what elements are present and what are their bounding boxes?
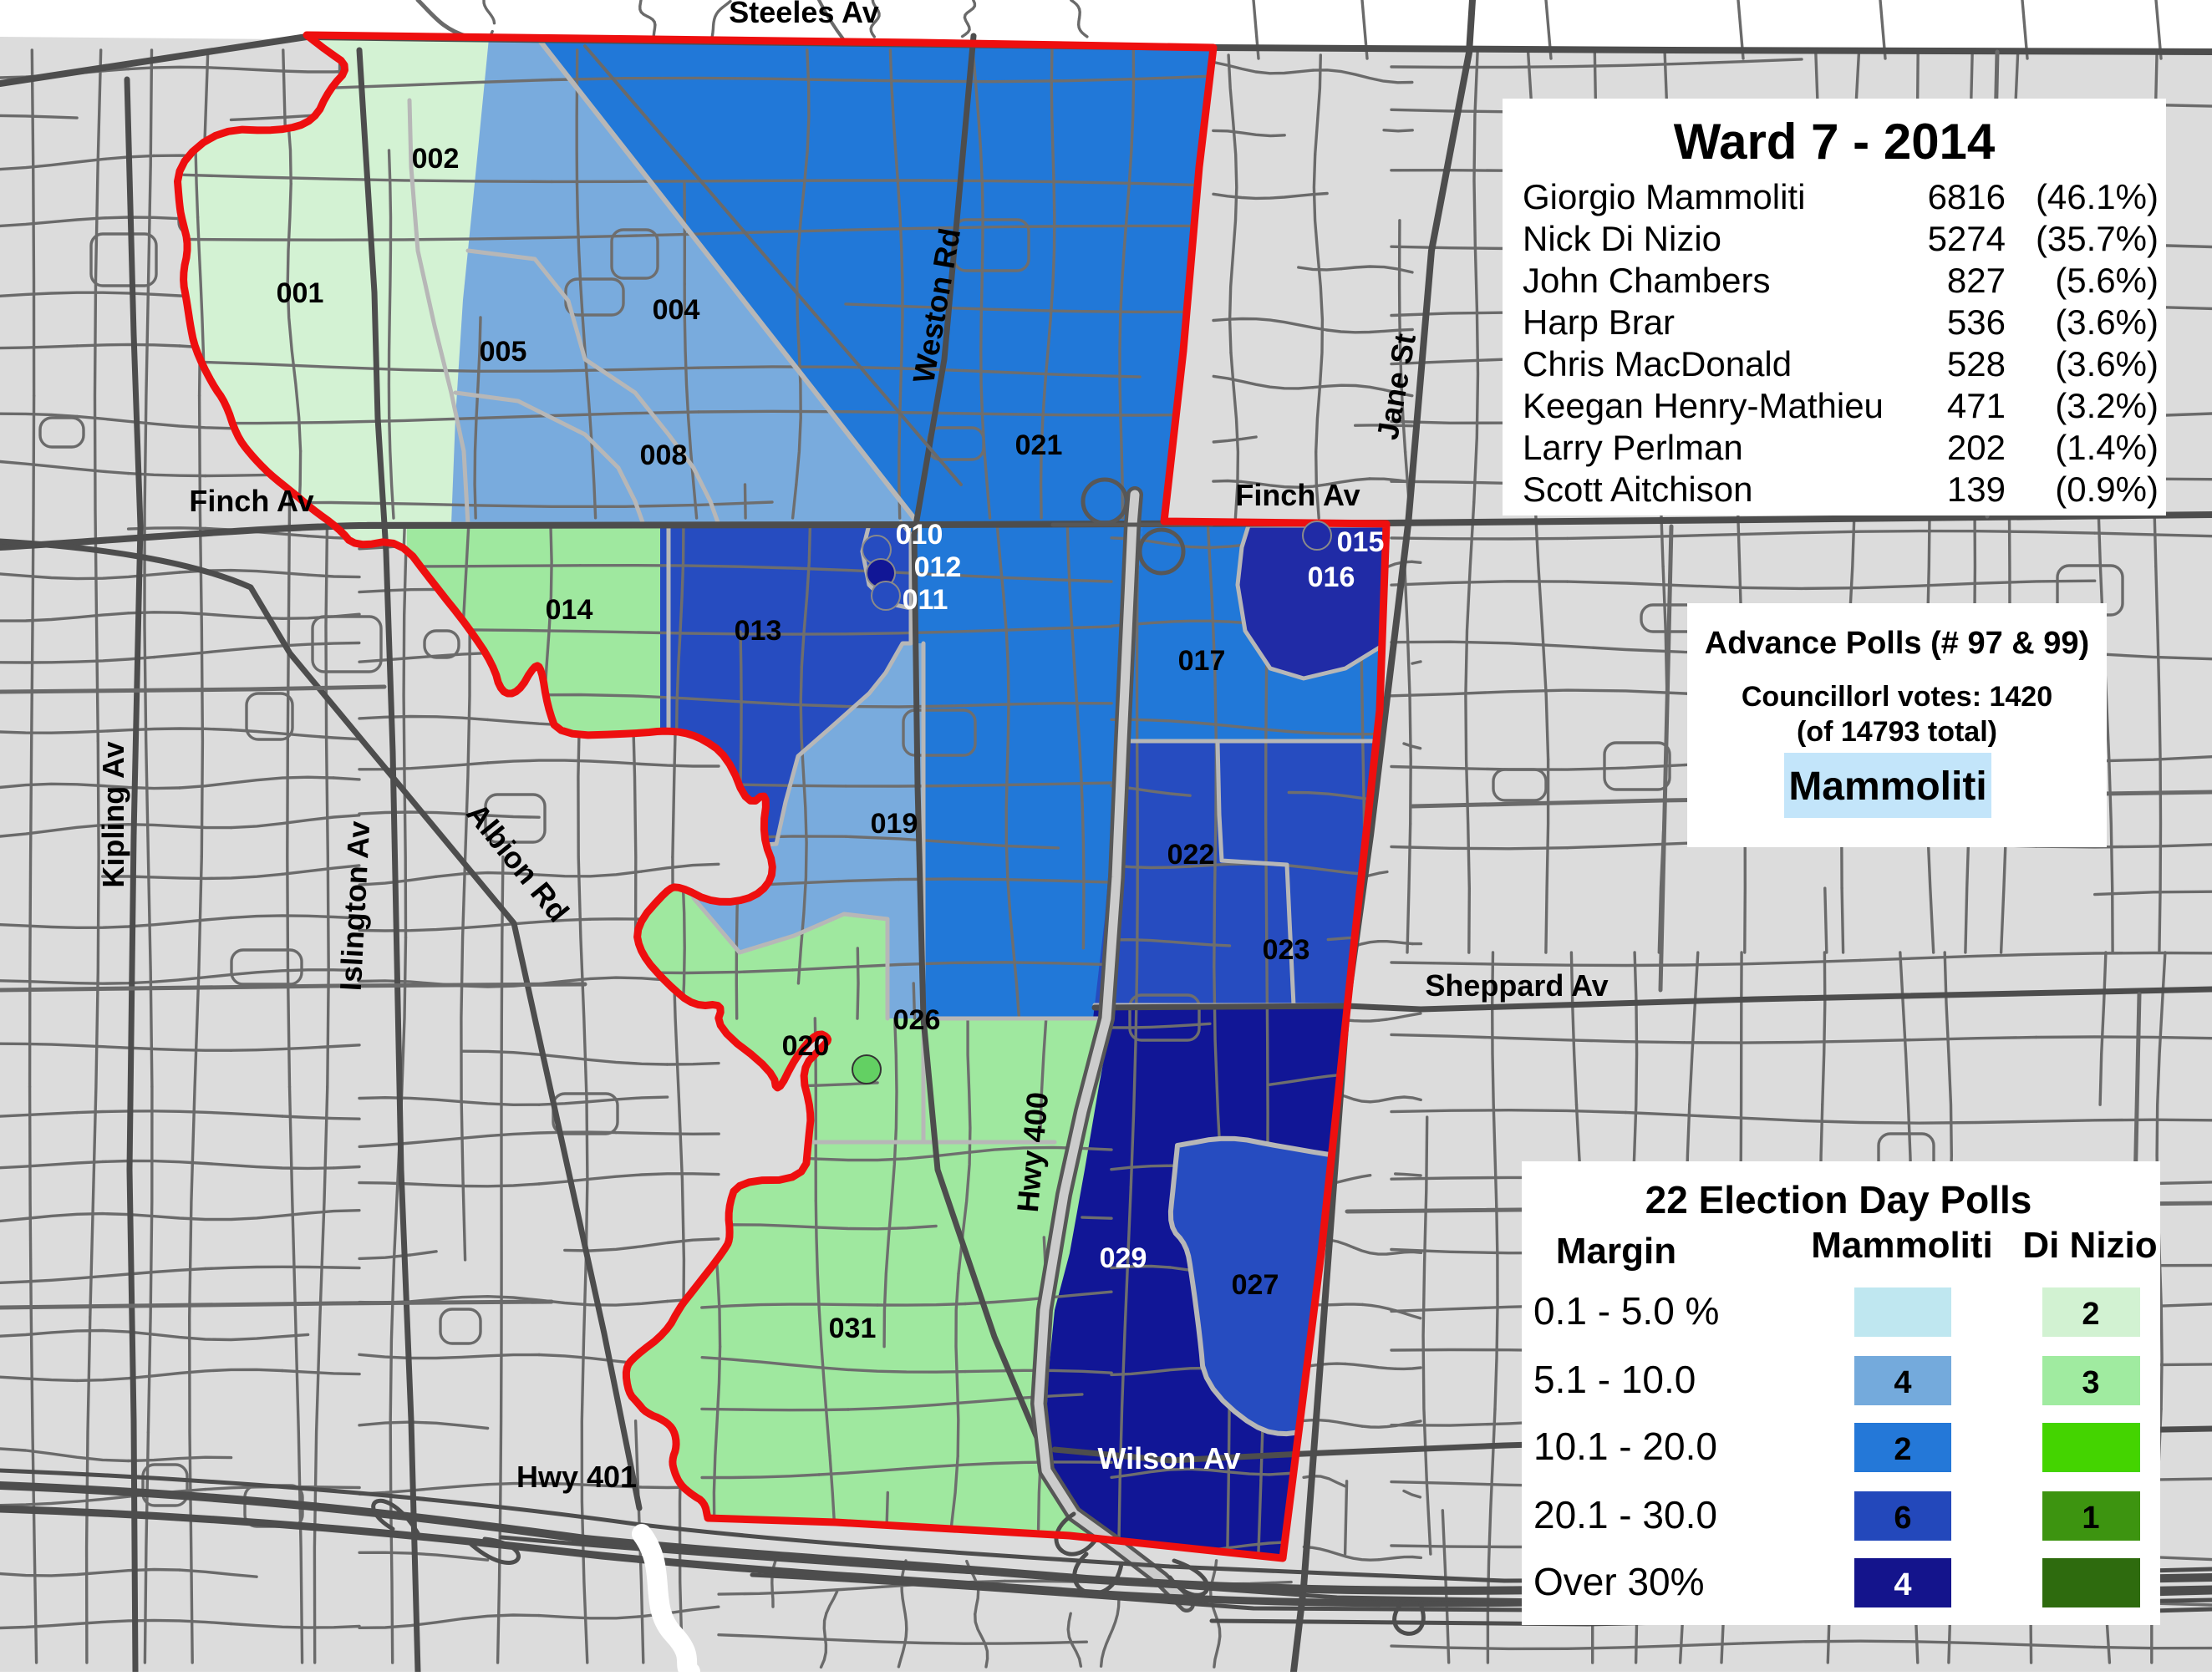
svg-text:Di Nizio: Di Nizio (2022, 1225, 2157, 1266)
svg-text:026: 026 (893, 1004, 941, 1036)
svg-text:22 Election Day Polls: 22 Election Day Polls (1645, 1178, 2032, 1221)
svg-text:(of 14793 total): (of 14793 total) (1797, 716, 1997, 748)
svg-text:827: 827 (1947, 261, 2006, 300)
svg-text:001: 001 (277, 277, 324, 309)
svg-text:022: 022 (1167, 839, 1215, 871)
svg-text:Kipling Av: Kipling Av (96, 741, 130, 887)
svg-text:015: 015 (1337, 526, 1385, 558)
svg-text:023: 023 (1263, 934, 1310, 966)
svg-text:Sheppard Av: Sheppard Av (1425, 968, 1608, 1003)
svg-text:6816: 6816 (1928, 177, 2006, 216)
svg-text:Margin: Margin (1556, 1231, 1676, 1272)
svg-text:Harp Brar: Harp Brar (1523, 302, 1675, 342)
svg-text:Larry Perlman: Larry Perlman (1523, 428, 1743, 467)
svg-text:536: 536 (1947, 302, 2006, 342)
svg-text:Councillorl votes: 1420: Councillorl votes: 1420 (1742, 681, 2052, 713)
svg-text:3: 3 (2082, 1365, 2099, 1400)
svg-text:Mammoliti: Mammoliti (1788, 764, 1986, 809)
svg-text:(3.6%): (3.6%) (2055, 302, 2159, 342)
svg-text:(35.7%): (35.7%) (2036, 219, 2159, 258)
svg-text:027: 027 (1232, 1269, 1279, 1301)
svg-text:Nick Di Nizio: Nick Di Nizio (1523, 219, 1721, 258)
svg-text:012: 012 (914, 551, 962, 583)
svg-text:011: 011 (903, 584, 948, 616)
svg-text:4: 4 (1894, 1567, 1911, 1602)
svg-text:John Chambers: John Chambers (1523, 261, 1770, 300)
svg-text:2: 2 (1894, 1432, 1911, 1467)
svg-text:005: 005 (480, 336, 527, 368)
svg-text:20.1 - 30.0: 20.1 - 30.0 (1533, 1493, 1717, 1536)
svg-text:016: 016 (1308, 561, 1355, 593)
svg-text:Mammoliti: Mammoliti (1811, 1225, 1993, 1266)
svg-text:6: 6 (1894, 1501, 1911, 1536)
svg-text:Advance Polls (# 97 & 99): Advance Polls (# 97 & 99) (1705, 626, 2089, 661)
svg-text:4: 4 (1894, 1365, 1911, 1400)
svg-text:5.1 - 10.0: 5.1 - 10.0 (1533, 1358, 1696, 1401)
svg-text:Keegan Henry-Mathieu: Keegan Henry-Mathieu (1523, 386, 1884, 425)
svg-text:029: 029 (1100, 1242, 1147, 1274)
svg-text:471: 471 (1947, 386, 2006, 425)
svg-text:(1.4%): (1.4%) (2055, 428, 2159, 467)
svg-text:10.1 - 20.0: 10.1 - 20.0 (1533, 1425, 1717, 1468)
svg-text:031: 031 (829, 1313, 877, 1344)
svg-text:528: 528 (1947, 344, 2006, 383)
svg-text:0.1 - 5.0 %: 0.1 - 5.0 % (1533, 1289, 1719, 1333)
svg-text:Scott Aitchison: Scott Aitchison (1523, 470, 1752, 509)
svg-text:Hwy 401: Hwy 401 (516, 1460, 637, 1494)
svg-text:002: 002 (412, 143, 460, 175)
svg-text:014: 014 (546, 594, 593, 626)
svg-text:(3.2%): (3.2%) (2055, 386, 2159, 425)
svg-text:017: 017 (1178, 645, 1226, 677)
svg-text:013: 013 (735, 615, 782, 647)
svg-text:1: 1 (2082, 1501, 2099, 1536)
svg-text:010: 010 (896, 519, 943, 551)
svg-text:5274: 5274 (1928, 219, 2006, 258)
svg-text:004: 004 (653, 294, 700, 326)
svg-text:Wilson Av: Wilson Av (1097, 1441, 1240, 1475)
svg-text:008: 008 (640, 439, 688, 471)
svg-text:Chris MacDonald: Chris MacDonald (1523, 344, 1792, 383)
svg-text:Ward 7 - 2014: Ward 7 - 2014 (1674, 114, 1996, 170)
svg-text:202: 202 (1947, 428, 2006, 467)
svg-text:019: 019 (871, 808, 918, 840)
svg-text:Finch Av: Finch Av (1235, 478, 1360, 512)
svg-text:(0.9%): (0.9%) (2055, 470, 2159, 509)
svg-text:Over 30%: Over 30% (1533, 1560, 1705, 1603)
svg-text:2: 2 (2082, 1297, 2099, 1332)
svg-text:(46.1%): (46.1%) (2036, 177, 2159, 216)
svg-text:021: 021 (1015, 429, 1063, 461)
svg-text:Finch Av: Finch Av (189, 484, 313, 518)
svg-text:Giorgio Mammoliti: Giorgio Mammoliti (1523, 177, 1805, 216)
svg-text:(3.6%): (3.6%) (2055, 344, 2159, 383)
svg-text:Steeles Av: Steeles Av (729, 0, 878, 29)
svg-text:139: 139 (1947, 470, 2006, 509)
svg-text:(5.6%): (5.6%) (2055, 261, 2159, 300)
svg-text:020: 020 (782, 1030, 830, 1062)
